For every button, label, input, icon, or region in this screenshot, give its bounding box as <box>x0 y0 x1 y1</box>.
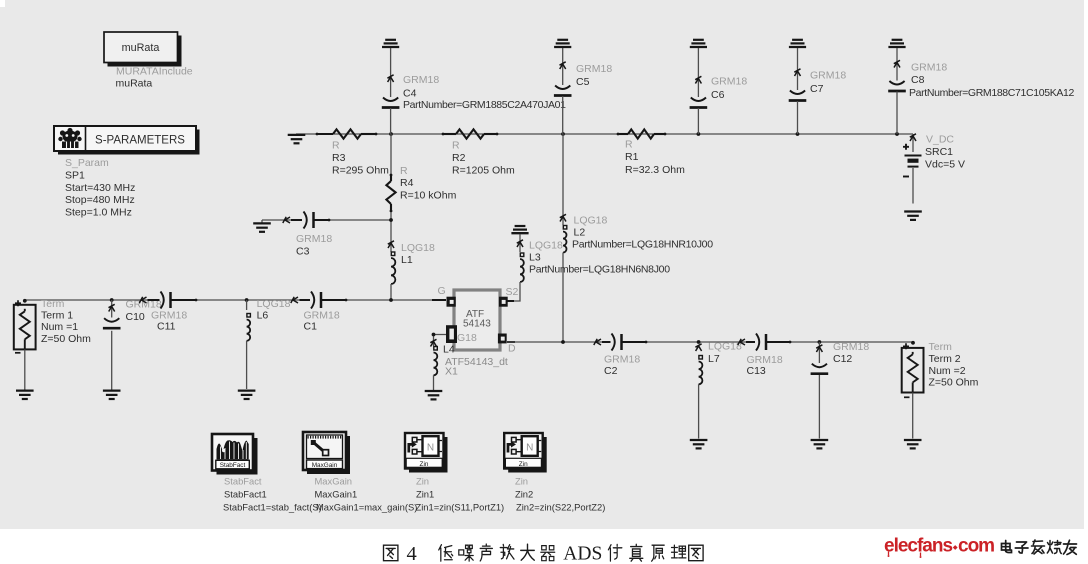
svg-text:Term 1: Term 1 <box>41 310 73 322</box>
svg-text:StabFact1=stab_fact(S): StabFact1=stab_fact(S) <box>223 502 322 513</box>
svg-text:GRM18: GRM18 <box>833 341 869 353</box>
svg-text:StabFact: StabFact <box>220 462 246 469</box>
svg-text:GRM18: GRM18 <box>403 74 439 86</box>
svg-text:Stop=480 MHz: Stop=480 MHz <box>65 194 135 206</box>
svg-text:muRata: muRata <box>122 42 160 54</box>
svg-text:Zin: Zin <box>515 476 528 487</box>
svg-text:L7: L7 <box>708 353 720 365</box>
svg-text:G: G <box>438 285 446 297</box>
svg-text:R=32.3 Ohm: R=32.3 Ohm <box>625 164 685 176</box>
svg-text:X1: X1 <box>445 366 458 378</box>
svg-text:Term 2: Term 2 <box>929 353 961 365</box>
svg-text:Z=50 Ohm: Z=50 Ohm <box>929 377 979 389</box>
svg-text:PartNumber=LQG18HN6N8J00: PartNumber=LQG18HN6N8J00 <box>529 264 670 276</box>
svg-text:C3: C3 <box>296 246 310 258</box>
svg-text:S_Param: S_Param <box>65 157 109 169</box>
svg-text:Zin2=zin(S22,PortZ2): Zin2=zin(S22,PortZ2) <box>516 502 605 513</box>
svg-text:GRM18: GRM18 <box>576 63 612 75</box>
svg-text:PartNumber=LQG18HNR10J00: PartNumber=LQG18HNR10J00 <box>572 239 713 251</box>
svg-text:R: R <box>332 140 340 152</box>
svg-text:C4: C4 <box>403 88 417 100</box>
svg-text:C6: C6 <box>711 89 725 101</box>
svg-text:SP1: SP1 <box>65 169 85 181</box>
svg-text:GRM18: GRM18 <box>296 233 332 245</box>
svg-text:MURATAInclude: MURATAInclude <box>116 66 193 78</box>
svg-text:C11: C11 <box>157 321 176 333</box>
svg-text:GRM18: GRM18 <box>810 70 846 82</box>
svg-text:R3: R3 <box>332 152 346 164</box>
svg-text:StabFact1: StabFact1 <box>224 489 267 500</box>
svg-text:MaxGain: MaxGain <box>312 462 338 469</box>
svg-text:MaxGain1=max_gain(S): MaxGain1=max_gain(S) <box>316 502 417 513</box>
svg-text:R2: R2 <box>452 152 466 164</box>
svg-text:L2: L2 <box>574 227 586 239</box>
svg-text:elecfans: elecfans <box>884 536 952 557</box>
svg-text:LQG18: LQG18 <box>708 341 742 353</box>
svg-text:4: 4 <box>407 543 417 564</box>
svg-text:R: R <box>452 140 460 152</box>
svg-text:Term: Term <box>41 298 65 310</box>
svg-text:MaxGain1: MaxGain1 <box>315 489 358 500</box>
svg-text:Zin1=zin(S11,PortZ1): Zin1=zin(S11,PortZ1) <box>416 502 505 513</box>
svg-text:SRC1: SRC1 <box>925 146 953 158</box>
svg-text:C13: C13 <box>747 365 766 377</box>
svg-text:LQG18: LQG18 <box>257 298 291 310</box>
svg-text:Num =1: Num =1 <box>41 321 78 333</box>
svg-text:GRM18: GRM18 <box>711 76 747 88</box>
svg-text:S-PARAMETERS: S-PARAMETERS <box>95 135 185 147</box>
svg-text:GRM18: GRM18 <box>911 62 947 74</box>
svg-text:Vdc=5 V: Vdc=5 V <box>925 159 965 171</box>
svg-text:N: N <box>427 443 434 454</box>
svg-text:54143: 54143 <box>463 319 491 330</box>
svg-text:V_DC: V_DC <box>926 134 954 146</box>
svg-text:Step=1.0 MHz: Step=1.0 MHz <box>65 207 132 219</box>
svg-text:GRM18: GRM18 <box>604 354 640 366</box>
svg-text:R: R <box>625 139 633 151</box>
svg-text:C5: C5 <box>576 76 590 88</box>
svg-text:C7: C7 <box>810 83 824 95</box>
svg-text:Z=50 Ohm: Z=50 Ohm <box>41 333 91 345</box>
svg-text:C8: C8 <box>911 74 925 86</box>
svg-text:Start=430 MHz: Start=430 MHz <box>65 182 135 194</box>
svg-text:com: com <box>958 536 994 557</box>
svg-text:L3: L3 <box>529 252 541 264</box>
svg-text:LQG18: LQG18 <box>529 240 563 252</box>
svg-text:PartNumber=GRM188C71C105KA12: PartNumber=GRM188C71C105KA12 <box>909 87 1075 99</box>
svg-text:LQG18: LQG18 <box>401 242 435 254</box>
svg-text:R=1205 Ohm: R=1205 Ohm <box>452 165 515 177</box>
svg-text:PartNumber=GRM1885C2A470JA01: PartNumber=GRM1885C2A470JA01 <box>403 99 566 111</box>
svg-text:muRata: muRata <box>116 78 153 90</box>
svg-text:L4: L4 <box>443 344 455 356</box>
svg-text:Zin2: Zin2 <box>515 489 533 500</box>
svg-text:Zin: Zin <box>420 461 429 468</box>
svg-text:L6: L6 <box>257 310 269 322</box>
svg-text:S2: S2 <box>506 286 519 298</box>
svg-text:L1: L1 <box>401 254 413 266</box>
svg-text:LQG18: LQG18 <box>574 215 608 227</box>
svg-text:MaxGain: MaxGain <box>315 476 353 487</box>
svg-text:StabFact: StabFact <box>224 476 262 487</box>
svg-text:ADS: ADS <box>563 544 602 564</box>
svg-text:Zin1: Zin1 <box>416 489 434 500</box>
svg-text:D: D <box>508 343 516 355</box>
svg-text:R: R <box>400 165 408 177</box>
svg-text:R1: R1 <box>625 151 639 163</box>
svg-text:C12: C12 <box>833 353 852 365</box>
svg-text:Zin: Zin <box>416 476 429 487</box>
svg-text:G18: G18 <box>457 332 477 344</box>
svg-text:C2: C2 <box>604 365 618 377</box>
svg-text:R=295 Ohm: R=295 Ohm <box>332 165 389 177</box>
svg-text:Term: Term <box>929 341 953 353</box>
svg-text:C1: C1 <box>304 321 318 333</box>
svg-text:Num =2: Num =2 <box>929 365 966 377</box>
svg-text:C10: C10 <box>126 311 145 323</box>
svg-text:R4: R4 <box>400 177 414 189</box>
svg-text:R=10 kOhm: R=10 kOhm <box>400 190 457 202</box>
